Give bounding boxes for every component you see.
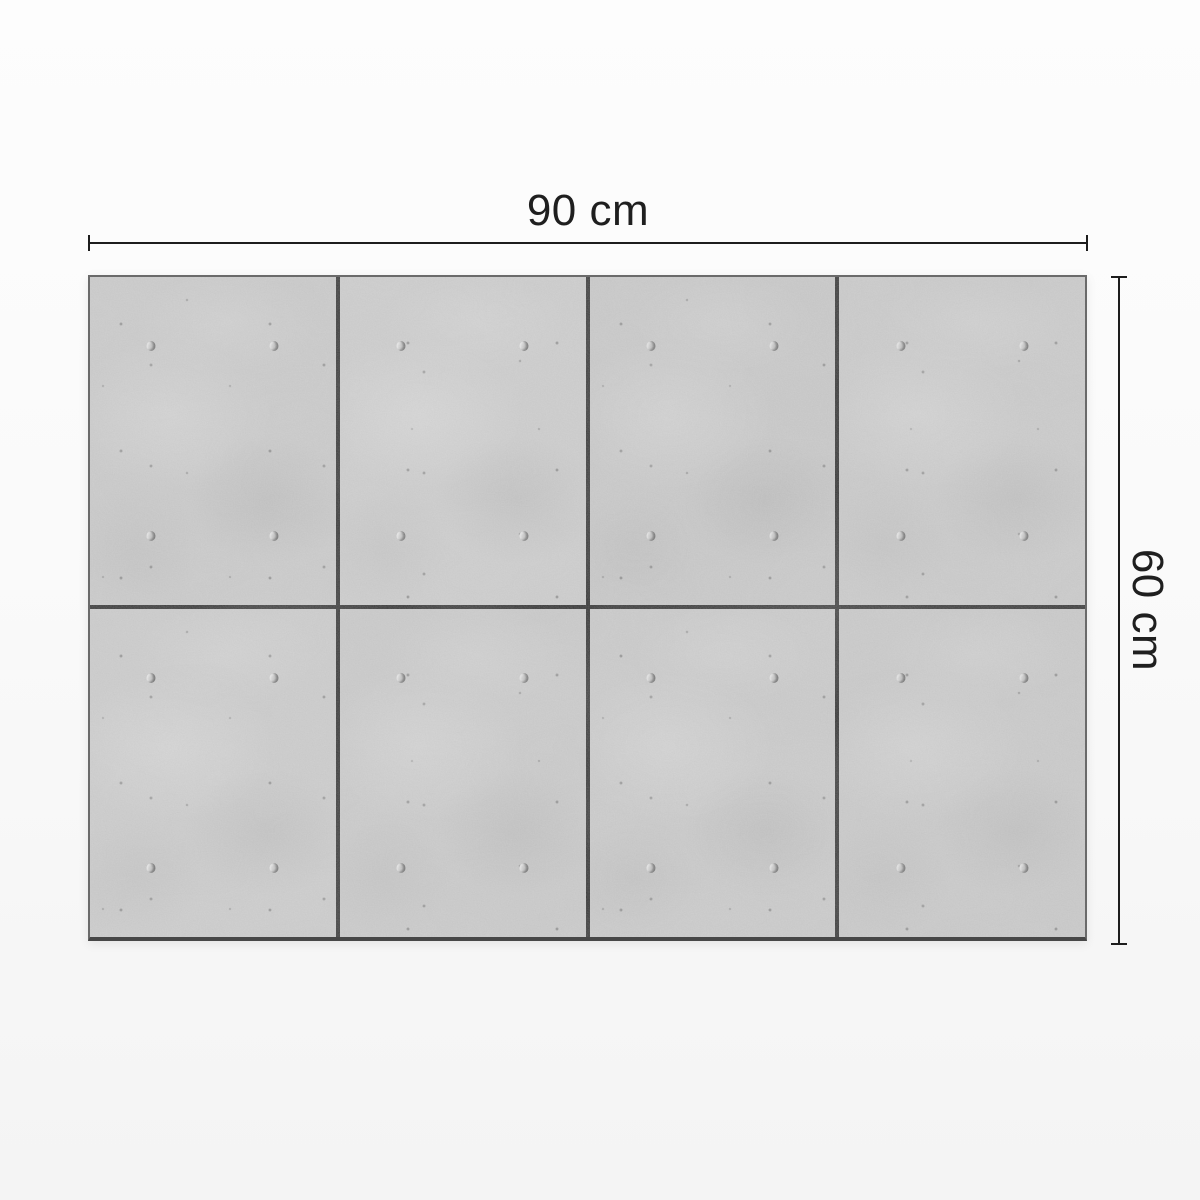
concrete-tile	[340, 609, 586, 937]
tie-hole	[1019, 863, 1028, 873]
height-dimension-line	[1118, 276, 1120, 945]
concrete-tile	[590, 609, 836, 937]
tie-hole	[769, 531, 778, 541]
tie-hole	[646, 531, 655, 541]
tie-hole	[397, 673, 406, 683]
tie-hole	[769, 673, 778, 683]
tie-hole	[397, 341, 406, 351]
dimension-tick	[1111, 276, 1127, 278]
tie-hole	[147, 863, 156, 873]
tie-hole	[520, 341, 529, 351]
concrete-tile	[340, 277, 586, 605]
tie-hole	[147, 673, 156, 683]
tie-hole	[270, 863, 279, 873]
tie-hole	[397, 863, 406, 873]
dimension-tick	[88, 235, 90, 251]
height-dimension-label: 60 cm	[1125, 549, 1169, 671]
dimension-tick	[1086, 235, 1088, 251]
tie-hole	[147, 341, 156, 351]
concrete-tile	[839, 609, 1085, 937]
tie-hole	[896, 673, 905, 683]
concrete-tile	[90, 609, 336, 937]
tie-hole	[520, 863, 529, 873]
tie-hole	[270, 341, 279, 351]
tie-hole	[397, 531, 406, 541]
tile-grid	[90, 277, 1085, 937]
tie-hole	[147, 531, 156, 541]
product-dimension-image: 90 cm	[0, 0, 1200, 1200]
width-dimension-line	[88, 242, 1088, 244]
dimension-tick	[1111, 943, 1127, 945]
tie-hole	[896, 863, 905, 873]
tie-hole	[520, 531, 529, 541]
tie-hole	[769, 341, 778, 351]
tie-hole	[896, 341, 905, 351]
concrete-tile	[90, 277, 336, 605]
tie-hole	[1019, 341, 1028, 351]
tie-hole	[646, 863, 655, 873]
concrete-panel	[88, 275, 1087, 941]
width-dimension-label: 90 cm	[88, 189, 1088, 233]
tie-hole	[1019, 531, 1028, 541]
tie-hole	[769, 863, 778, 873]
tie-hole	[270, 673, 279, 683]
concrete-tile	[590, 277, 836, 605]
concrete-tile	[839, 277, 1085, 605]
tie-hole	[520, 673, 529, 683]
tie-hole	[896, 531, 905, 541]
tie-hole	[646, 673, 655, 683]
tie-hole	[646, 341, 655, 351]
tie-hole	[270, 531, 279, 541]
tie-hole	[1019, 673, 1028, 683]
